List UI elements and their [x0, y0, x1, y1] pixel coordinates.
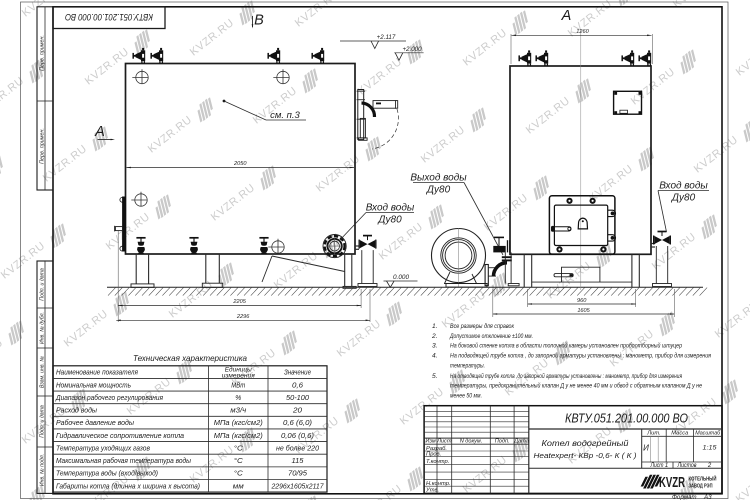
svg-text:50-100: 50-100 — [286, 393, 309, 402]
svg-text:°С: °С — [234, 444, 244, 452]
svg-text:Т.контр.: Т.контр. — [426, 459, 449, 465]
svg-text:Утв.: Утв. — [425, 487, 439, 493]
svg-text:Изм: Изм — [425, 439, 436, 445]
svg-text:КВТУ.051.201.00.000 ВО: КВТУ.051.201.00.000 ВО — [565, 411, 688, 426]
svg-text:0,6: 0,6 — [292, 380, 303, 389]
svg-text:Листов: Листов — [677, 463, 697, 469]
svg-text:2296: 2296 — [236, 314, 250, 320]
svg-text:Температура воды (вход/выход): Температура воды (вход/выход) — [56, 469, 158, 478]
svg-text:температуры, предохранительный: температуры, предохранительный клапан Д … — [450, 382, 702, 390]
svg-text:не более 220: не более 220 — [276, 443, 319, 452]
svg-text:70/95: 70/95 — [288, 469, 308, 478]
svg-text:+2.000: +2.000 — [402, 46, 422, 53]
svg-text:%: % — [235, 395, 241, 402]
svg-text:0.000: 0.000 — [393, 274, 409, 281]
svg-text:Лист: Лист — [650, 463, 664, 469]
svg-text:Габариты котла (длинна х ширин: Габариты котла (длинна х ширина х высота… — [56, 481, 200, 490]
svg-text:Все размеры для справок: Все размеры для справок — [450, 322, 515, 330]
svg-text:2205: 2205 — [232, 299, 246, 305]
svg-text:измерения: измерения — [222, 373, 255, 380]
svg-text:Вход воды: Вход воды — [366, 203, 415, 214]
svg-text:Heatexpert- КВр -0,6- К ( К ): Heatexpert- КВр -0,6- К ( К ) — [534, 451, 638, 460]
svg-text:На подводящей трубе котла ,: На подводящей трубе котла , до запорной … — [450, 352, 711, 360]
svg-text:Значение: Значение — [284, 368, 311, 377]
svg-text:960: 960 — [577, 298, 587, 304]
svg-text:Вход воды: Вход воды — [659, 181, 708, 192]
svg-text:4.: 4. — [432, 353, 438, 360]
svg-text:A: A — [561, 8, 572, 24]
svg-text:2.: 2. — [431, 333, 438, 340]
svg-text:+2.117: +2.117 — [377, 34, 396, 41]
svg-text:Номинальная мощность: Номинальная мощность — [56, 380, 131, 389]
svg-text:Подп.: Подп. — [495, 439, 510, 445]
svg-text:3.: 3. — [432, 343, 438, 350]
svg-text:Дата: Дата — [513, 439, 529, 445]
svg-text:5.: 5. — [432, 373, 438, 380]
svg-text:Инв. № дубл.: Инв. № дубл. — [40, 312, 46, 344]
svg-text:МПа (кгс/см2): МПа (кгс/см2) — [214, 420, 263, 427]
svg-text:1.: 1. — [432, 323, 438, 330]
svg-text:На отводящей трубе котла ,до з: На отводящей трубе котла ,до запорной ар… — [450, 372, 682, 380]
svg-text:Перв. примен.: Перв. примен. — [40, 128, 46, 164]
svg-text:Температура уходящих газов: Температура уходящих газов — [56, 443, 150, 452]
svg-text:Пров.: Пров. — [426, 452, 441, 458]
svg-text:Ду80: Ду80 — [426, 185, 451, 196]
svg-text:Подп. и дата: Подп. и дата — [40, 268, 46, 301]
svg-text:А3: А3 — [703, 494, 712, 500]
svg-text:ЗАВОД РЭП: ЗАВОД РЭП — [689, 484, 713, 490]
svg-text:м3/ч: м3/ч — [230, 408, 246, 415]
svg-text:B: B — [254, 13, 264, 29]
svg-text:2050: 2050 — [233, 161, 247, 167]
svg-text:1:15: 1:15 — [703, 445, 717, 452]
svg-text:Ду80: Ду80 — [671, 193, 696, 204]
svg-text:На боковой стенке котла в обла: На боковой стенке котла в области топочн… — [450, 342, 682, 350]
svg-text:Гидравлическое сопротивление к: Гидравлическое сопротивление котла — [56, 431, 184, 440]
svg-text:Лист: Лист — [436, 439, 452, 445]
svg-text:Подп. и дата: Подп. и дата — [40, 405, 46, 438]
svg-text:Инв. № подл.: Инв. № подл. — [40, 454, 46, 486]
svg-text:0,6 (6,0): 0,6 (6,0) — [283, 418, 312, 427]
svg-text:КВТУ.051.201.00.000 ВО: КВТУ.051.201.00.000 ВО — [65, 12, 153, 22]
svg-text:2: 2 — [707, 463, 712, 469]
svg-text:Формат: Формат — [672, 494, 697, 500]
svg-text:менее 50 мм.: менее 50 мм. — [450, 392, 482, 399]
svg-text:Масса: Масса — [671, 431, 689, 437]
svg-text:температуры.: температуры. — [450, 362, 485, 369]
svg-text:1605: 1605 — [577, 308, 590, 314]
svg-text:И: И — [643, 444, 649, 453]
svg-text:см. п.3: см. п.3 — [270, 110, 300, 121]
svg-text:Рабочее давление воды: Рабочее давление воды — [56, 418, 135, 427]
svg-text:Максимальная рабочая температу: Максимальная рабочая температура воды — [56, 456, 192, 465]
svg-text:Ду80: Ду80 — [377, 215, 402, 226]
svg-text:0,06 (0,6): 0,06 (0,6) — [281, 431, 314, 440]
svg-text:Выход воды: Выход воды — [410, 173, 467, 184]
svg-text:Н.контр.: Н.контр. — [426, 481, 451, 487]
svg-text:МПа (кгс/см2): МПа (кгс/см2) — [214, 433, 263, 440]
svg-text:Техническая характеристика: Техническая характеристика — [133, 354, 247, 363]
svg-text:Перв. примен.: Перв. примен. — [40, 35, 46, 71]
svg-text:Масштаб: Масштаб — [695, 431, 721, 437]
svg-text:2296х1605х2117: 2296х1605х2117 — [271, 481, 325, 490]
svg-text:мм: мм — [233, 483, 244, 490]
svg-text:115: 115 — [292, 456, 305, 465]
svg-text:Наименование показателя: Наименование показателя — [56, 368, 138, 377]
svg-text:Допустимое отклонение ±100 мм: Допустимое отклонение ±100 мм. — [449, 333, 533, 340]
svg-text:20: 20 — [292, 406, 302, 415]
svg-text:°С: °С — [234, 457, 244, 465]
svg-text:KVZR: KVZR — [659, 475, 685, 491]
svg-text:Котел водогрейный: Котел водогрейный — [542, 439, 630, 448]
svg-text:1: 1 — [665, 463, 668, 469]
svg-text:Диапазон рабочего регулировани: Диапазон рабочего регулирования — [55, 393, 163, 402]
svg-text:1260: 1260 — [576, 29, 589, 35]
svg-text:МВт: МВт — [231, 382, 245, 389]
svg-text:A: A — [94, 124, 105, 140]
svg-text:N докум.: N докум. — [460, 439, 483, 445]
svg-text:КОТЕЛЬНЫЙ: КОТЕЛЬНЫЙ — [689, 475, 717, 483]
svg-text:°С: °С — [234, 470, 244, 478]
svg-text:Взам. инв. №: Взам. инв. № — [40, 356, 46, 388]
svg-text:Расход воды: Расход воды — [56, 406, 98, 415]
svg-text:Лит.: Лит. — [646, 431, 661, 437]
